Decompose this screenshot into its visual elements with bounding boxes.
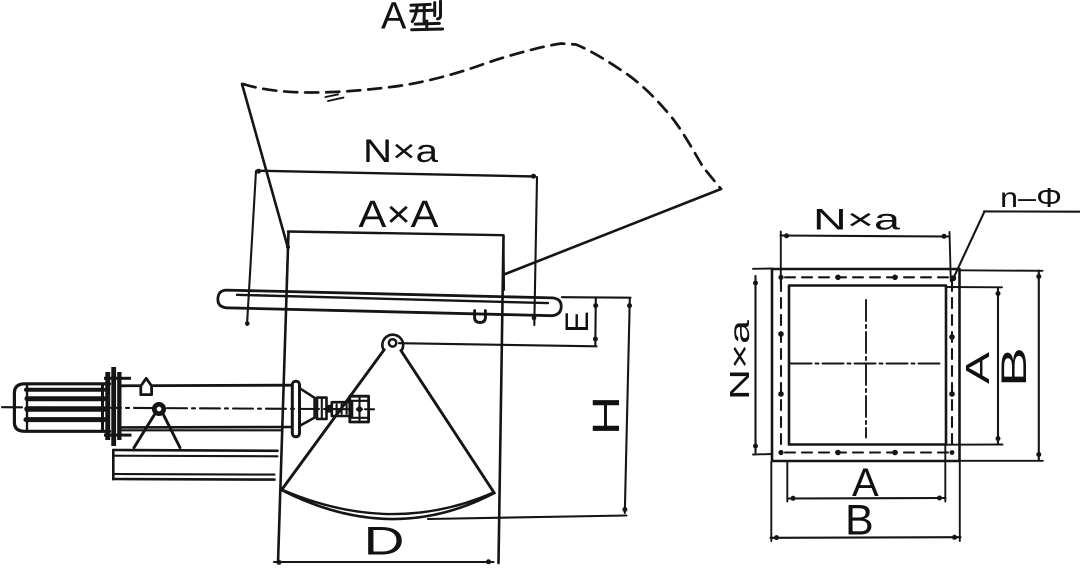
svg-text:A: A — [959, 352, 996, 384]
svg-text:N×a: N×a — [724, 319, 755, 400]
svg-text:B: B — [995, 347, 1034, 387]
svg-text:N×a: N×a — [813, 204, 900, 237]
svg-text:E: E — [559, 311, 595, 332]
svg-text:B: B — [845, 497, 874, 545]
svg-text:H: H — [585, 396, 628, 436]
svg-text:A×A: A×A — [359, 194, 440, 236]
svg-text:A: A — [381, 0, 407, 38]
svg-text:D: D — [364, 520, 405, 564]
svg-text:N×a: N×a — [363, 133, 438, 169]
svg-text:n–Φ: n–Φ — [1000, 182, 1062, 213]
